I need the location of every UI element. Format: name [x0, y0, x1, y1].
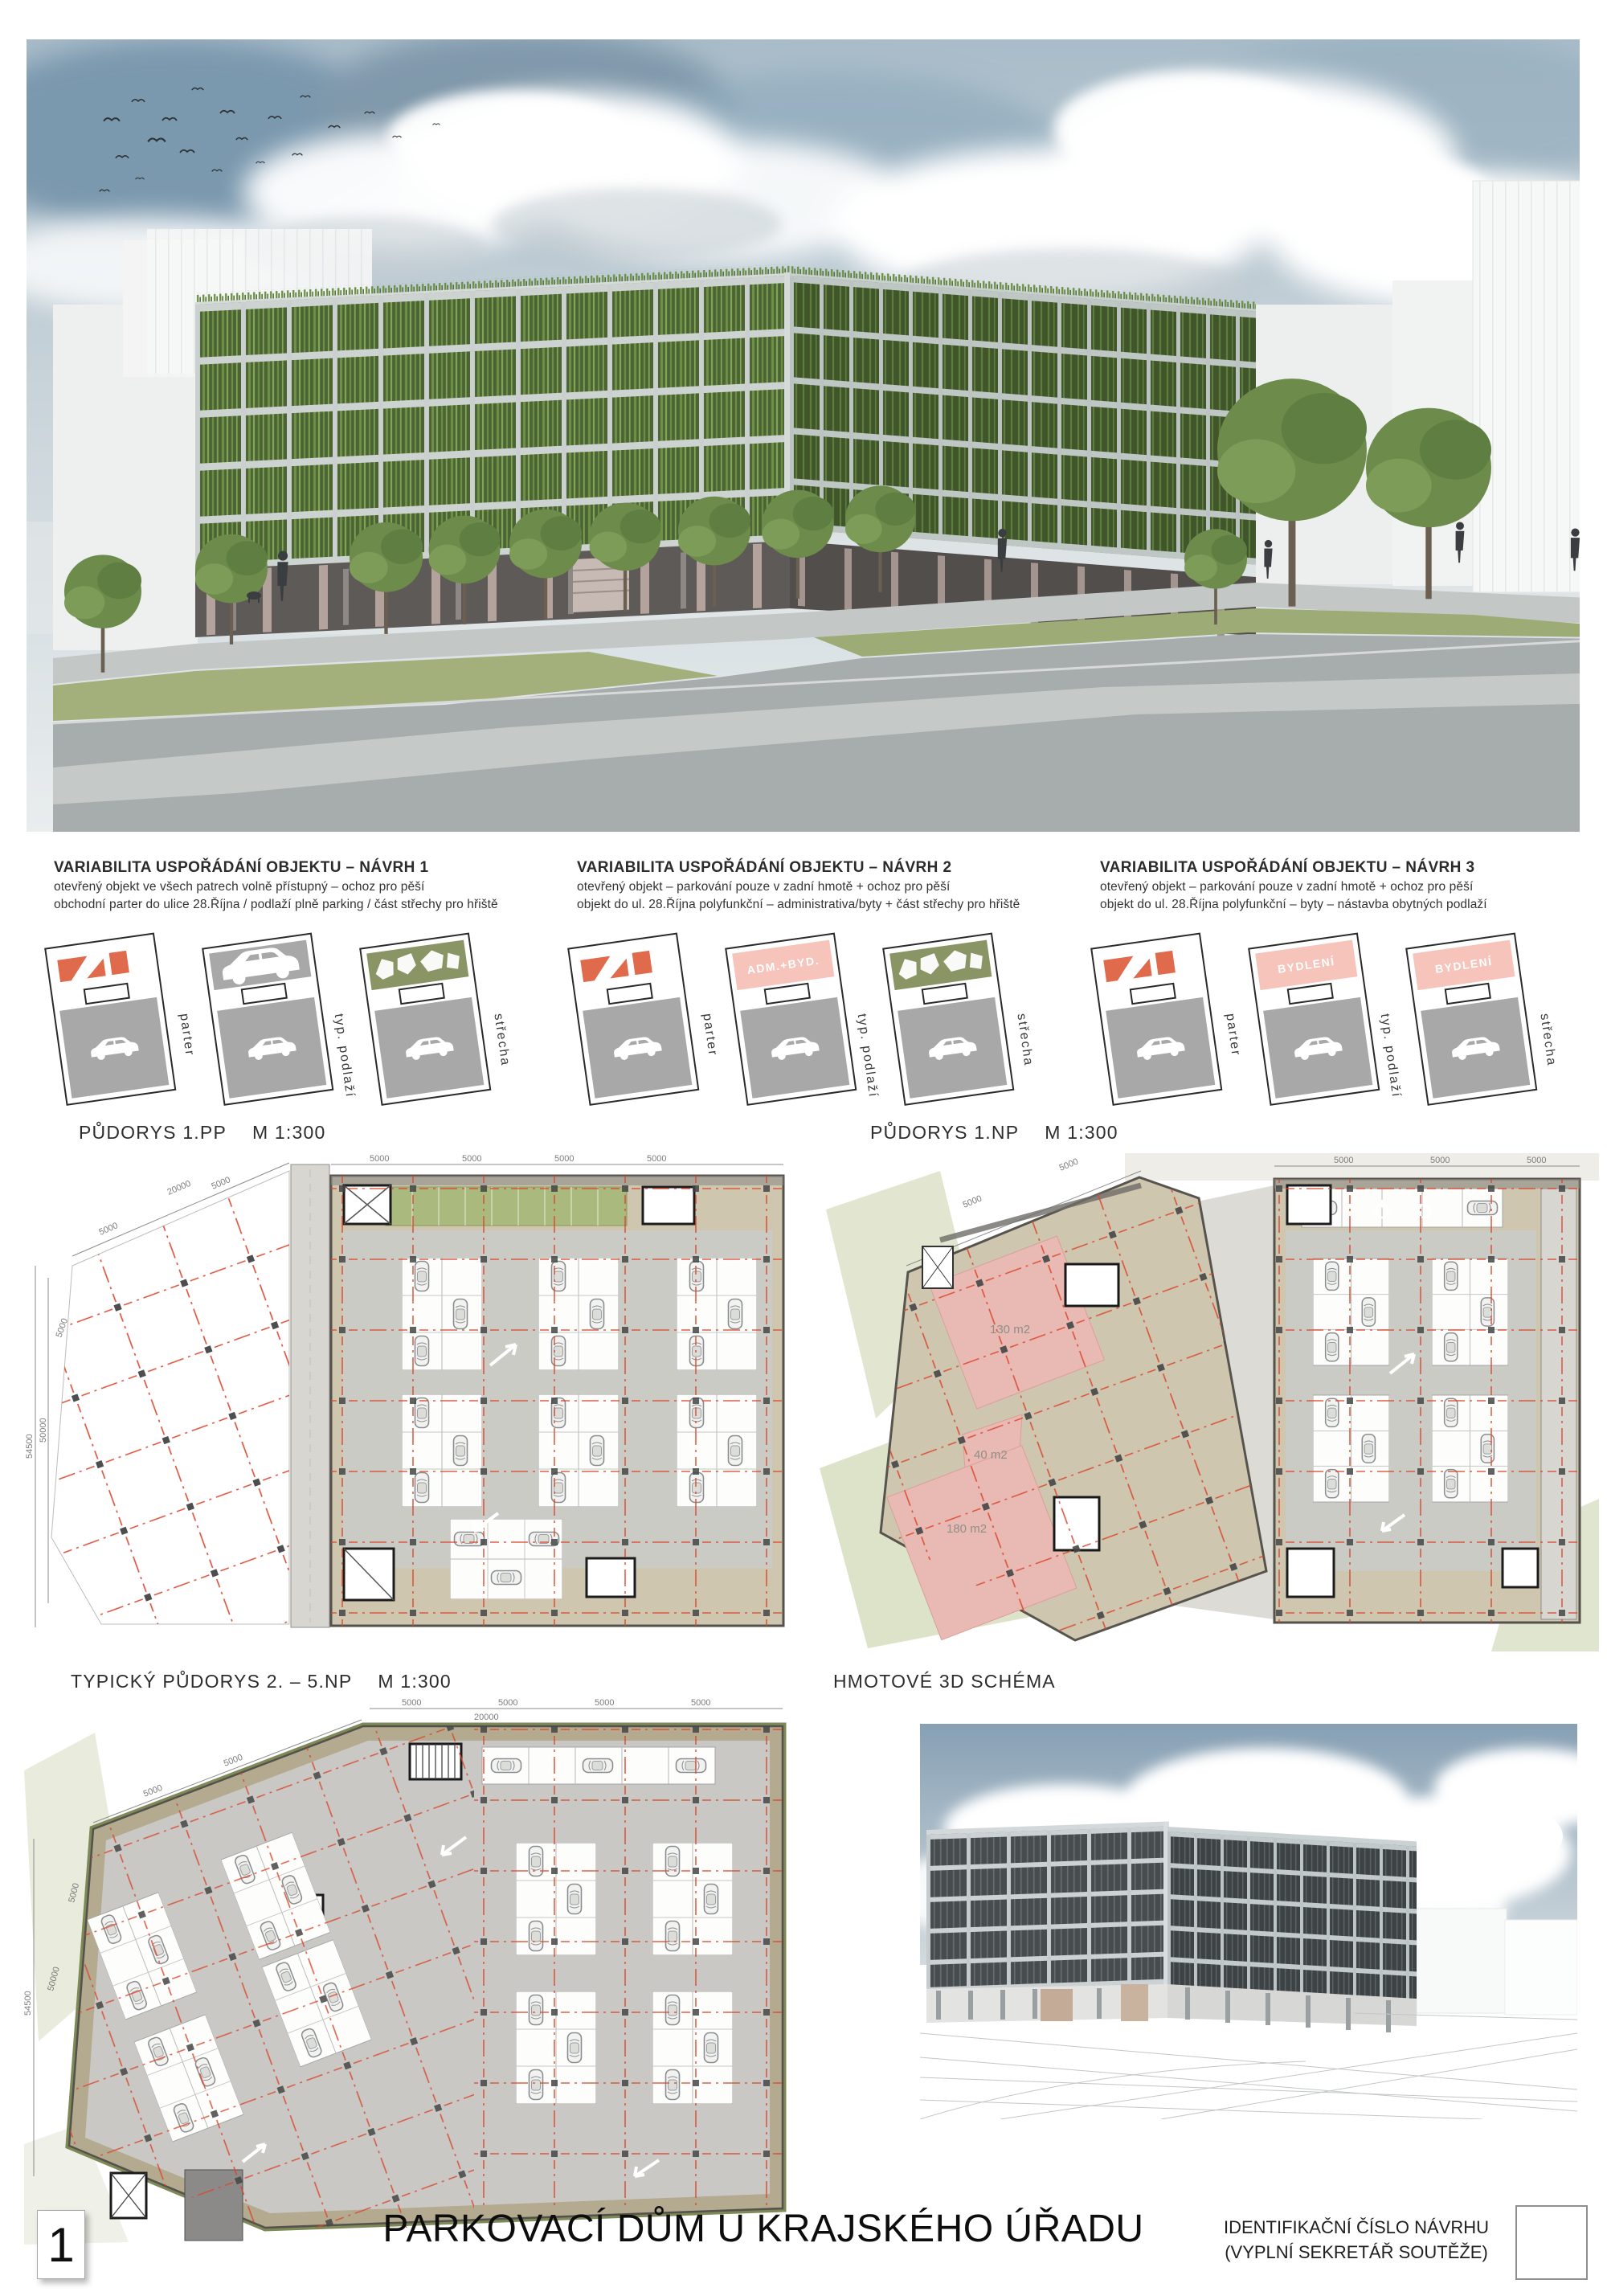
typ-garage: [56, 1718, 783, 2241]
variant-2-line1: otevřený objekt – parkování pouze v zadn…: [577, 880, 1095, 894]
variant-3-diagrams: parter BYDLENÍ typ. podlaží BYDLENÍ stře…: [1103, 939, 1607, 1111]
schema-building: [926, 1821, 1417, 2032]
svg-text:5000: 5000: [1527, 1156, 1546, 1165]
schema-stair-tower: [1121, 1984, 1148, 2021]
variant-1: VARIABILITA USPOŘÁDÁNÍ OBJEKTU – NÁVRH 1…: [54, 859, 572, 1111]
plan-pp-title: PŮDORYS 1.PPM 1:300: [79, 1122, 326, 1144]
identification-label: IDENTIFIKAČNÍ ČÍSLO NÁVRHU (VYPLNÍ SEKRE…: [1212, 2216, 1501, 2265]
parking-mass: [1263, 997, 1372, 1099]
parking-mass: [583, 997, 692, 1099]
scheme-label: střecha: [1536, 1013, 1558, 1067]
scheme-parter: parter: [580, 939, 702, 1111]
parking-mass: [740, 997, 849, 1099]
plan-np-title: PŮDORYS 1.NPM 1:300: [870, 1122, 1118, 1144]
hero-rendering: [27, 39, 1580, 832]
variant-1-line1: otevřený objekt ve všech patrech volně p…: [54, 880, 572, 894]
identification-number-box: [1515, 2205, 1588, 2280]
scheme-label: parter: [1222, 1013, 1242, 1058]
svg-text:20000: 20000: [474, 1713, 499, 1722]
parking-mass: [59, 997, 169, 1099]
plan-pp-scale: M 1:300: [252, 1122, 326, 1143]
variant-2-heading: VARIABILITA USPOŘÁDÁNÍ OBJEKTU – NÁVRH 2: [577, 859, 1095, 877]
svg-text:50000: 50000: [39, 1418, 48, 1443]
svg-text:5000: 5000: [647, 1154, 666, 1164]
svg-text:5000: 5000: [691, 1698, 710, 1708]
schema-title: HMOTOVÉ 3D SCHÉMA: [833, 1671, 1056, 1692]
plan-typical-drawing: 5000 5000 5000 5000 20000 5000 5000 5450…: [24, 1694, 787, 2245]
variant-3-heading: VARIABILITA USPOŘÁDÁNÍ OBJEKTU – NÁVRH 3: [1100, 859, 1607, 877]
svg-text:5000: 5000: [370, 1154, 389, 1164]
variant-2: VARIABILITA USPOŘÁDÁNÍ OBJEKTU – NÁVRH 2…: [577, 859, 1095, 1111]
scheme-label: střecha: [490, 1013, 512, 1067]
scheme-typical-floor: BYDLENÍ typ. podlaží: [1261, 939, 1383, 1111]
parking-mass: [1106, 997, 1215, 1099]
scheme-parter: parter: [1103, 939, 1225, 1111]
svg-text:5000: 5000: [402, 1698, 421, 1708]
svg-text:5000: 5000: [1334, 1156, 1353, 1165]
variant-1-line2: obchodní parter do ulice 28.Října / podl…: [54, 898, 572, 912]
variant-3-line2: objekt do ul. 28.Října polyfunkční – byt…: [1100, 898, 1607, 912]
sheet-number-box: 1: [37, 2210, 85, 2279]
variant-3: VARIABILITA USPOŘÁDÁNÍ OBJEKTU – NÁVRH 3…: [1100, 859, 1607, 1111]
pp-garage: [331, 1176, 783, 1626]
competition-board: VARIABILITA USPOŘÁDÁNÍ OBJEKTU – NÁVRH 1…: [0, 0, 1607, 2296]
np-garage: [1274, 1179, 1580, 1623]
plan-np-title-text: PŮDORYS 1.NP: [870, 1122, 1019, 1143]
sheet-number: 1: [47, 2217, 74, 2273]
plan-pp-drawing: 5000 5000 5000 5000 20000 5000 5000 5450…: [24, 1153, 787, 1651]
scheme-label: typ. podlaží: [1377, 1013, 1404, 1099]
parking-mass: [217, 997, 326, 1099]
svg-text:54500: 54500: [25, 1434, 35, 1459]
scheme-roof: střecha: [372, 939, 494, 1111]
schema-stair-tower: [1041, 1989, 1073, 2021]
variant-3-line1: otevřený objekt – parkování pouze v zadn…: [1100, 880, 1607, 894]
svg-text:54500: 54500: [24, 1991, 33, 2016]
svg-text:5000: 5000: [554, 1154, 574, 1164]
svg-text:5000: 5000: [462, 1154, 481, 1164]
svg-text:5000: 5000: [498, 1698, 517, 1708]
parking-house-building: [195, 264, 1256, 639]
pp-structural-grid-zone: [51, 1171, 289, 1624]
variant-1-diagrams: parter typ. podlaží střecha: [57, 939, 572, 1111]
svg-text:5000: 5000: [1058, 1156, 1080, 1173]
scheme-label: typ. podlaží: [331, 1013, 358, 1099]
parking-mass: [374, 997, 484, 1099]
svg-text:20000: 20000: [166, 1179, 192, 1197]
plan-typical-scale: M 1:300: [378, 1671, 452, 1692]
parking-mass: [1421, 997, 1530, 1099]
scheme-typical-floor: ADM.+BYD. typ. podlaží: [738, 939, 860, 1111]
pp-ramp: [291, 1164, 329, 1627]
svg-text:5000: 5000: [962, 1193, 983, 1209]
plan-np-scale: M 1:300: [1045, 1122, 1118, 1143]
massing-3d-schema: [920, 1724, 1577, 2119]
plan-typical-title-text: TYPICKÝ PŮDORYS 2. – 5.NP: [71, 1671, 352, 1692]
variant-1-heading: VARIABILITA USPOŘÁDÁNÍ OBJEKTU – NÁVRH 1: [54, 859, 572, 877]
plan-typical-title: TYPICKÝ PŮDORYS 2. – 5.NPM 1:300: [71, 1671, 452, 1692]
svg-text:5000: 5000: [97, 1221, 119, 1238]
svg-text:5000: 5000: [595, 1698, 614, 1708]
identification-line1: IDENTIFIKAČNÍ ČÍSLO NÁVRHU: [1212, 2216, 1501, 2241]
plan-pp-title-text: PŮDORYS 1.PP: [79, 1122, 227, 1143]
svg-text:5000: 5000: [1430, 1156, 1450, 1165]
scheme-roof: BYDLENÍ střecha: [1418, 939, 1540, 1111]
variant-2-diagrams: parter ADM.+BYD. typ. podlaží střecha: [580, 939, 1095, 1111]
scheme-label: typ. podlaží: [854, 1013, 881, 1099]
scheme-typical-floor: typ. podlaží: [215, 939, 337, 1111]
identification-line2: (VYPLNÍ SEKRETÁŘ SOUTĚŽE): [1212, 2241, 1501, 2265]
board-title: PARKOVACÍ DŮM U KRAJSKÉHO ÚŘADU: [346, 2207, 1181, 2251]
scheme-label: parter: [176, 1013, 196, 1058]
scheme-roof: střecha: [895, 939, 1017, 1111]
scheme-parter: parter: [57, 939, 179, 1111]
variant-2-line2: objekt do ul. 28.Října polyfunkční – adm…: [577, 898, 1095, 912]
schema-context-buildings: [1394, 1909, 1577, 2015]
scheme-label: střecha: [1013, 1013, 1035, 1067]
parking-mass: [898, 997, 1007, 1099]
plan-np-drawing: 5000 5000 5000 5000 5000 130 m2 40 m2 18…: [820, 1153, 1599, 1651]
scheme-label: parter: [699, 1013, 719, 1058]
